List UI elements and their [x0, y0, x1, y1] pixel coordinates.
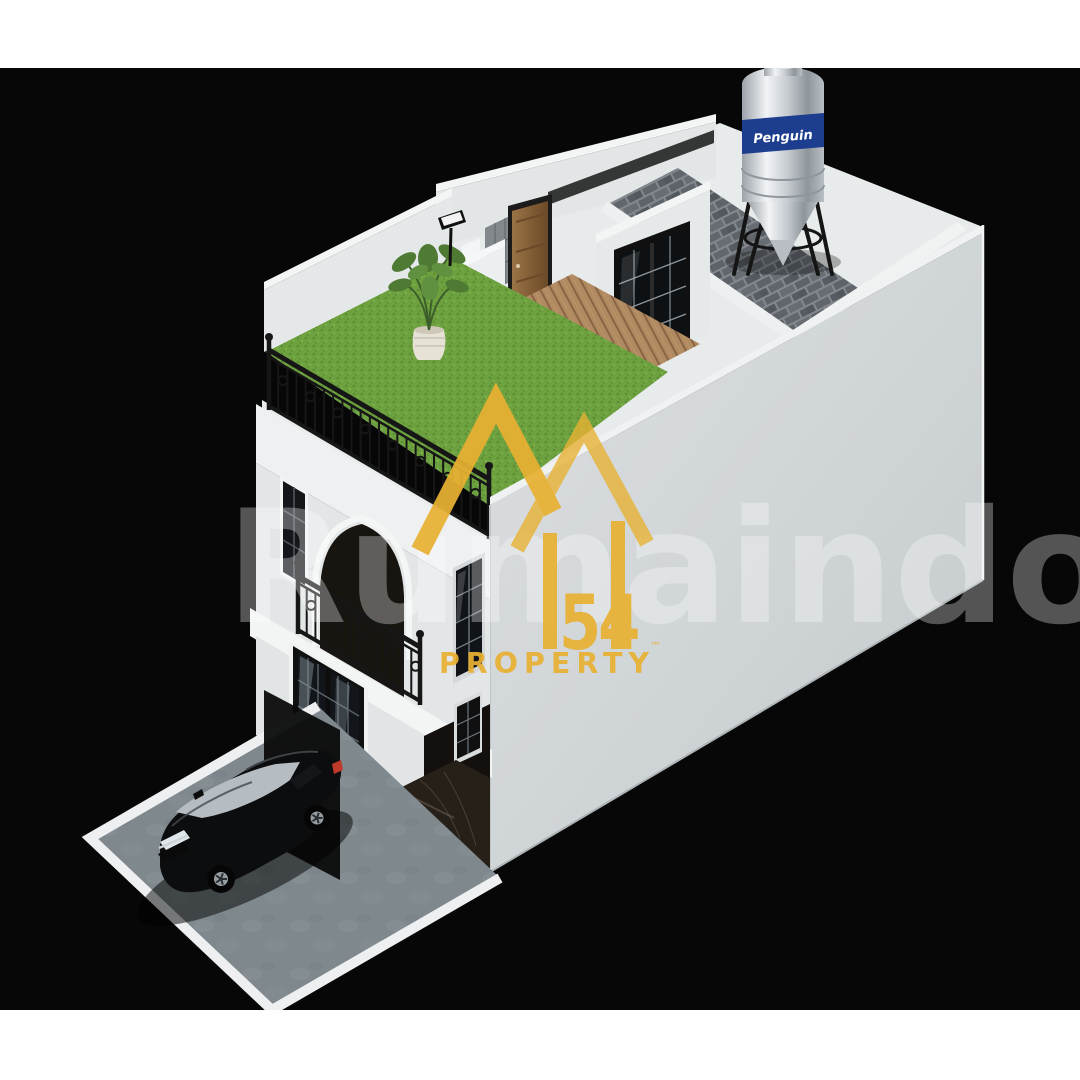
watermark-text: Rumaindo [226, 477, 1080, 660]
house-render-canvas: Penguin [0, 0, 1080, 1080]
water-tank: Penguin [725, 52, 841, 275]
top-white-band [0, 0, 1080, 68]
poster: Penguin [0, 0, 1080, 1080]
entrance-window [454, 691, 482, 765]
bottom-white-band [0, 1010, 1080, 1080]
logo-property-label: PROPERTY [439, 647, 655, 680]
logo-bar-left [543, 533, 557, 649]
logo-trademark: ™ [650, 640, 661, 653]
